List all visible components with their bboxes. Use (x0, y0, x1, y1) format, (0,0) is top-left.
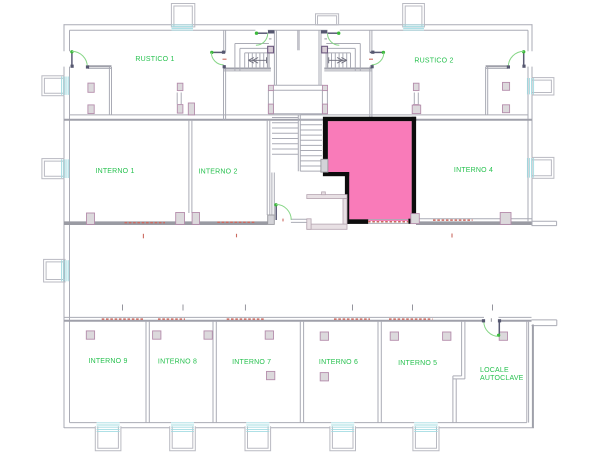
svg-text:INTERNO 6: INTERNO 6 (319, 359, 358, 366)
svg-text:LOCALE: LOCALE (480, 367, 509, 374)
svg-text:AUTOCLAVE: AUTOCLAVE (480, 375, 524, 382)
svg-text:INTERNO 2: INTERNO 2 (198, 169, 237, 176)
svg-text:RUSTICO 1: RUSTICO 1 (135, 56, 174, 63)
svg-text:INTERNO 8: INTERNO 8 (158, 358, 197, 365)
svg-text:RUSTICO 2: RUSTICO 2 (414, 57, 453, 64)
svg-text:INTERNO 1: INTERNO 1 (95, 168, 134, 175)
svg-text:INTERNO 7: INTERNO 7 (232, 359, 271, 366)
svg-text:INTERNO 5: INTERNO 5 (398, 360, 437, 367)
svg-text:INTERNO 9: INTERNO 9 (88, 358, 127, 365)
svg-text:INTERNO 4: INTERNO 4 (454, 167, 493, 174)
